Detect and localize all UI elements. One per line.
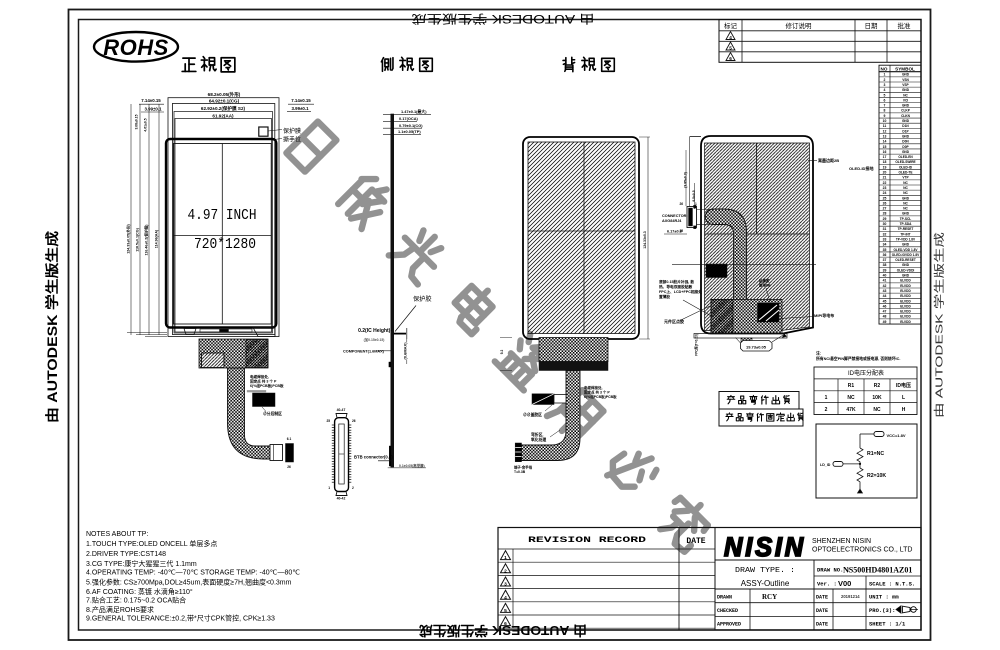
svg-text:12: 12	[883, 129, 887, 133]
svg-text:6.17±0.3: 6.17±0.3	[667, 230, 682, 234]
svg-text:由 AUTODESK 学生版生成: 由 AUTODESK 学生版生成	[933, 231, 946, 418]
svg-text:114.96(AA): 114.96(AA)	[155, 229, 159, 248]
svg-text:CLKP: CLKP	[901, 109, 911, 113]
svg-text:GND: GND	[902, 212, 910, 216]
svg-text:1: 1	[825, 395, 828, 401]
svg-text:NC: NC	[873, 407, 881, 413]
svg-text:CLKN: CLKN	[901, 114, 911, 118]
svg-text:6.1: 6.1	[287, 437, 292, 441]
svg-text:47: 47	[883, 310, 887, 314]
svg-text:68.2±0.05(外形): 68.2±0.05(外形)	[208, 91, 241, 98]
svg-text:40-42: 40-42	[337, 497, 346, 501]
svg-text:VCI: VCI	[903, 98, 908, 102]
svg-text:保护胶: 保护胶	[413, 295, 432, 303]
svg-text:NOTES ABOUT TP:: NOTES ABOUT TP:	[86, 531, 148, 538]
svg-text:26: 26	[287, 465, 291, 469]
svg-text:9.GENERAL TOLERANCE:±0.2,带*尺寸C: 9.GENERAL TOLERANCE:±0.2,带*尺寸CPK管控, CPK≥…	[86, 614, 275, 623]
svg-text:26: 26	[352, 419, 356, 423]
svg-text:NS500HD4801AZ01: NS500HD4801AZ01	[843, 566, 912, 575]
svg-text:33: 33	[883, 237, 887, 241]
svg-text:标记: 标记	[724, 21, 738, 30]
svg-text:TP-VDD 1.8V: TP-VDD 1.8V	[896, 237, 916, 241]
svg-text:REVISION RECORD: REVISION RECORD	[528, 535, 646, 545]
svg-text:8: 8	[884, 109, 886, 113]
svg-text:124.33±0.3: 124.33±0.3	[643, 231, 647, 249]
svg-text:OLED-VDDI: OLED-VDDI	[897, 268, 915, 272]
svg-text:贴黑胶: 贴黑胶	[759, 278, 770, 283]
svg-text:0.1±0.05(离型膜): 0.1±0.05(离型膜)	[399, 463, 425, 468]
svg-text:(加0.15±0.15): (加0.15±0.15)	[364, 337, 385, 342]
svg-text:ID电压分配表: ID电压分配表	[848, 369, 884, 377]
svg-text:MIPI导电布: MIPI导电布	[814, 312, 834, 318]
svg-text:GND: GND	[902, 104, 910, 108]
svg-text:OLED-EN: OLED-EN	[898, 155, 913, 159]
svg-text:48: 48	[883, 315, 887, 319]
svg-text:OLED-SWIRE: OLED-SWIRE	[895, 160, 915, 164]
svg-text:10: 10	[883, 119, 887, 123]
svg-text:VSN: VSN	[902, 78, 909, 82]
svg-text:116.46±0.2(保护膜): 116.46±0.2(保护膜)	[144, 224, 149, 256]
svg-text:D1P: D1P	[902, 129, 909, 133]
svg-text:由 AUTODESK 学生版生成: 由 AUTODESK 学生版生成	[411, 12, 595, 26]
svg-text:离墨边距2B: 离墨边距2B	[818, 157, 839, 163]
svg-text:0.17(OCA): 0.17(OCA)	[399, 116, 419, 121]
svg-text:124.33±0.05(外形): 124.33±0.05(外形)	[126, 223, 131, 253]
svg-text:Ver. :: Ver. :	[817, 581, 837, 588]
svg-text:VCC=1.8V: VCC=1.8V	[887, 433, 906, 438]
svg-text:24: 24	[883, 191, 887, 195]
svg-text:SYMBOL: SYMBOL	[895, 67, 915, 72]
svg-text:5: 5	[729, 46, 732, 51]
svg-text:35: 35	[883, 248, 887, 252]
svg-text:⊘分后制区: ⊘分后制区	[263, 411, 282, 416]
svg-text:修订说明: 修订说明	[786, 21, 813, 30]
svg-text:21: 21	[883, 176, 887, 180]
svg-text:34: 34	[883, 243, 887, 247]
svg-text:⊘⊘盖胶区: ⊘⊘盖胶区	[523, 412, 542, 417]
svg-text:15: 15	[883, 145, 887, 149]
svg-text:9: 9	[884, 114, 886, 118]
svg-text:19: 19	[883, 165, 887, 169]
svg-text:注:: 注:	[816, 351, 821, 356]
svg-text:17: 17	[883, 155, 887, 159]
svg-text:6(%组PCB板)PCB板: 6(%组PCB板)PCB板	[250, 383, 284, 388]
svg-text:ELVDD: ELVDD	[900, 299, 911, 303]
svg-text:ELVDD: ELVDD	[900, 304, 911, 308]
svg-text:4.61±0.5: 4.61±0.5	[144, 118, 148, 131]
svg-text:45: 45	[883, 299, 887, 303]
svg-text:热、导电双面胶贴敷: 热、导电双面胶贴敷	[659, 284, 692, 289]
svg-text:7.14±0.15: 7.14±0.15	[291, 98, 311, 103]
svg-text:36: 36	[883, 253, 887, 257]
svg-text:9.2: 9.2	[500, 350, 504, 355]
svg-text:固定点 共 3 个 P: 固定点 共 3 个 P	[250, 379, 277, 384]
svg-text:DATE: DATE	[816, 608, 828, 614]
svg-text:SHENZHEN NISIN: SHENZHEN NISIN	[812, 538, 871, 545]
svg-text:RCY: RCY	[762, 593, 777, 601]
svg-text:3.08±0.15: 3.08±0.15	[135, 114, 139, 129]
svg-text:1.1±0.05(TP): 1.1±0.05(TP)	[398, 129, 421, 134]
svg-text:20191214: 20191214	[841, 594, 860, 599]
svg-text:61.92(AA): 61.92(AA)	[212, 114, 234, 119]
svg-text:APPROVED: APPROVED	[717, 622, 741, 628]
svg-text:2.DRIVER TYPE:CST148: 2.DRIVER TYPE:CST148	[86, 551, 166, 558]
svg-text:GND: GND	[902, 150, 910, 154]
svg-text:26: 26	[679, 202, 683, 206]
svg-text:DRAW TYPE. :: DRAW TYPE. :	[735, 567, 795, 575]
svg-text:H: H	[902, 407, 906, 413]
svg-text:DRAWN: DRAWN	[717, 595, 732, 601]
svg-text:TP-SCL: TP-SCL	[900, 217, 912, 221]
svg-text:4.OPERATING TEMP: -40℃—70℃ STO: 4.OPERATING TEMP: -40℃—70℃ STORAGE TEMP:…	[86, 570, 300, 577]
svg-text:DATE: DATE	[816, 622, 828, 628]
svg-text:R1=NC: R1=NC	[867, 451, 884, 457]
svg-text:16: 16	[883, 150, 887, 154]
svg-text:PRO.(3):: PRO.(3):	[869, 607, 895, 614]
svg-text:4.97 INCH: 4.97 INCH	[188, 207, 257, 224]
svg-text:6(%组PCB板)PCB板: 6(%组PCB板)PCB板	[584, 394, 617, 399]
svg-text:日期: 日期	[865, 22, 879, 30]
svg-text:BTB connector(0.6): BTB connector(0.6)	[354, 455, 393, 460]
svg-text:ELVDD: ELVDD	[900, 294, 911, 298]
svg-text:3: 3	[884, 83, 886, 87]
svg-text:ROHS: ROHS	[103, 35, 169, 60]
svg-text:CHECKED: CHECKED	[717, 608, 738, 614]
svg-text:电缆焊接处,: 电缆焊接处,	[250, 374, 269, 379]
svg-text:44: 44	[883, 294, 887, 298]
svg-text:SCALE : N.T.S.: SCALE : N.T.S.	[869, 581, 915, 588]
svg-text:底部0.15胶片补强, 散: 底部0.15胶片补强, 散	[659, 279, 694, 284]
svg-text:3.99±0.1: 3.99±0.1	[291, 106, 309, 111]
svg-text:27: 27	[883, 207, 887, 211]
svg-text:NC: NC	[903, 181, 908, 185]
svg-text:CONNECTOR:: CONNECTOR:	[662, 214, 688, 218]
svg-text:43: 43	[883, 289, 887, 293]
svg-text:39: 39	[883, 268, 887, 272]
svg-text:R2=10K: R2=10K	[867, 473, 886, 479]
svg-text:1: 1	[328, 486, 330, 490]
svg-text:2: 2	[504, 568, 507, 574]
svg-text:1: 1	[884, 73, 886, 77]
svg-text:固定点 共 3 个 P: 固定点 共 3 个 P	[584, 390, 610, 395]
svg-text:41: 41	[883, 279, 887, 283]
svg-text:23: 23	[883, 186, 887, 190]
svg-text:T=0.3B: T=0.3B	[514, 470, 526, 474]
svg-text:64.92±0.1(CG): 64.92±0.1(CG)	[209, 98, 240, 103]
svg-text:4: 4	[504, 595, 507, 601]
svg-text:30: 30	[883, 222, 887, 226]
svg-text:7.14±0.15: 7.14±0.15	[141, 98, 161, 103]
svg-text:14: 14	[883, 140, 887, 144]
svg-text:19.73±0.05: 19.73±0.05	[746, 345, 767, 350]
svg-text:R1: R1	[848, 383, 855, 389]
svg-text:22: 22	[883, 181, 887, 185]
svg-text:720*1280: 720*1280	[194, 237, 256, 253]
svg-text:AXG84RJ4: AXG84RJ4	[662, 219, 682, 223]
svg-text:NISIN: NISIN	[724, 532, 806, 562]
svg-text:胶带8B: 胶带8B	[758, 283, 771, 288]
svg-text:ASSY-Outline: ASSY-Outline	[741, 579, 790, 588]
svg-text:5.强化参数: CS≥700Mpa,DOL≥45um,表面硬: 5.强化参数: CS≥700Mpa,DOL≥45um,表面硬度≥7H,翘曲度<0…	[86, 578, 292, 587]
svg-text:37: 37	[883, 258, 887, 262]
svg-text:18: 18	[883, 160, 887, 164]
svg-text:ELVDD: ELVDD	[900, 289, 911, 293]
svg-text:49: 49	[883, 320, 887, 324]
svg-text:20: 20	[883, 171, 887, 175]
svg-text:10K: 10K	[872, 395, 882, 401]
svg-text:1.47±0.1(最大): 1.47±0.1(最大)	[401, 109, 427, 114]
svg-text:GND: GND	[902, 88, 910, 92]
svg-text:40-47: 40-47	[337, 408, 346, 412]
svg-text:NC: NC	[847, 395, 855, 401]
svg-text:6.AF COATING: 蒸镀 水滴角≥110°: 6.AF COATING: 蒸镀 水滴角≥110°	[86, 587, 193, 596]
svg-text:GND: GND	[902, 119, 910, 123]
svg-text:批准: 批准	[898, 21, 912, 30]
svg-text:GND: GND	[902, 134, 910, 138]
svg-text:7: 7	[884, 104, 886, 108]
svg-text:40: 40	[883, 274, 887, 278]
svg-text:置薄胶: 置薄胶	[659, 294, 670, 299]
svg-text:2: 2	[825, 407, 828, 413]
svg-text:OLED-RESET: OLED-RESET	[895, 258, 916, 262]
svg-text:TP-RESET: TP-RESET	[898, 227, 914, 231]
svg-text:(0.6MAX): (0.6MAX)	[403, 342, 408, 360]
svg-text:由 AUTODESK 学生版生成: 由 AUTODESK 学生版生成	[44, 230, 60, 423]
svg-text:32: 32	[883, 232, 887, 236]
svg-text:3: 3	[504, 582, 507, 588]
svg-text:端子-金手指: 端子-金手指	[514, 465, 533, 470]
svg-text:3.CG TYPE:康宁大猩猩三代 1.1mm: 3.CG TYPE:康宁大猩猩三代 1.1mm	[86, 559, 197, 568]
svg-text:撕手位: 撕手位	[283, 136, 301, 144]
svg-text:(3.85±0.3): (3.85±0.3)	[684, 172, 688, 187]
svg-text:D1N: D1N	[902, 124, 909, 128]
svg-text:FPC上、LCD+FPC相接处: FPC上、LCD+FPC相接处	[659, 289, 702, 294]
svg-text:0.79±0.1(CG): 0.79±0.1(CG)	[399, 123, 423, 128]
svg-text:电缆焊接处,: 电缆焊接处,	[584, 385, 602, 390]
svg-text:OLED-ID接地: OLED-ID接地	[849, 165, 873, 171]
svg-text:TP-SDA: TP-SDA	[900, 222, 913, 226]
svg-text:38: 38	[883, 263, 887, 267]
svg-text:DATE: DATE	[816, 595, 828, 601]
svg-text:4: 4	[884, 88, 886, 92]
svg-text:25: 25	[326, 419, 330, 423]
svg-text:TP-INT: TP-INT	[900, 232, 910, 236]
svg-text:4: 4	[729, 35, 732, 40]
svg-text:ELVDD: ELVDD	[900, 310, 911, 314]
svg-text:NC: NC	[903, 186, 908, 190]
svg-text:OLED-TE: OLED-TE	[899, 171, 913, 175]
svg-text:6: 6	[729, 56, 732, 61]
svg-text:8.产品满足ROHS要求: 8.产品满足ROHS要求	[86, 605, 154, 614]
svg-text:GND: GND	[902, 243, 910, 247]
svg-text:所有NC/悬空PIN脚严禁接地或接电源, 否则烧坏IC.: 所有NC/悬空PIN脚严禁接地或接电源, 否则烧坏IC.	[816, 356, 900, 361]
svg-text:6: 6	[884, 98, 886, 102]
svg-text:GND: GND	[902, 263, 910, 267]
svg-text:D0N: D0N	[902, 140, 909, 144]
svg-text:118.5±0.1(CG): 118.5±0.1(CG)	[136, 227, 140, 251]
svg-text:GND: GND	[902, 274, 910, 278]
svg-text:OLED-ID: OLED-ID	[899, 165, 913, 169]
svg-text:3.99±0.1: 3.99±0.1	[144, 107, 162, 112]
svg-text:NC: NC	[903, 93, 908, 97]
svg-text:11: 11	[883, 124, 887, 128]
svg-text:42: 42	[883, 284, 887, 288]
svg-text:25: 25	[883, 196, 887, 200]
svg-text:29: 29	[883, 217, 887, 221]
svg-text:元件区点胶: 元件区点胶	[664, 318, 684, 324]
svg-text:28: 28	[883, 212, 887, 216]
svg-text:NC: NC	[903, 207, 908, 211]
svg-text:OLED-VDD 1.8V: OLED-VDD 1.8V	[893, 248, 918, 252]
svg-text:SHEET : 1/1: SHEET : 1/1	[869, 621, 906, 628]
svg-text:R2: R2	[874, 383, 881, 389]
svg-text:47K: 47K	[846, 407, 856, 413]
svg-text:13: 13	[883, 134, 887, 138]
svg-text:NC: NC	[903, 201, 908, 205]
svg-text:VTP: VTP	[902, 176, 909, 180]
svg-text:V00: V00	[838, 579, 851, 588]
svg-text:保护膜: 保护膜	[283, 127, 301, 135]
svg-text:氧化处理: 氧化处理	[530, 437, 546, 442]
svg-text:GND: GND	[902, 73, 910, 77]
svg-text:46: 46	[883, 304, 887, 308]
svg-text:VSP: VSP	[902, 83, 909, 87]
svg-text:NC: NC	[903, 191, 908, 195]
svg-text:GND: GND	[902, 196, 910, 200]
svg-text:L: L	[902, 395, 905, 401]
svg-text:5: 5	[504, 608, 507, 614]
svg-text:ELVDD: ELVDD	[900, 320, 911, 324]
svg-text:ELVDD: ELVDD	[900, 284, 911, 288]
svg-text:5: 5	[884, 93, 886, 97]
svg-text:OLED-IOVDD 1.8V: OLED-IOVDD 1.8V	[892, 253, 920, 257]
svg-text:UNIT : mm: UNIT : mm	[869, 594, 899, 601]
svg-text:7.贴合工艺: 0.175~0.2 OCA贴合: 7.贴合工艺: 0.175~0.2 OCA贴合	[86, 596, 186, 605]
svg-text:ELVDD: ELVDD	[900, 279, 911, 283]
svg-text:弯折区,: 弯折区,	[531, 432, 543, 437]
svg-text:COMPONENT(1.6MAX): COMPONENT(1.6MAX)	[343, 349, 385, 353]
svg-text:2: 2	[884, 78, 886, 82]
svg-text:62.92±0.2(保护膜 S2): 62.92±0.2(保护膜 S2)	[201, 105, 246, 112]
svg-text:ID电压: ID电压	[896, 382, 911, 389]
svg-text:FPC厚(T=0.23): FPC厚(T=0.23)	[694, 334, 699, 356]
svg-text:6: 6	[504, 621, 507, 627]
svg-text:NO: NO	[881, 67, 888, 72]
svg-text:LD_ID: LD_ID	[820, 463, 831, 467]
svg-text:DATE: DATE	[686, 537, 705, 546]
svg-text:D0P: D0P	[902, 145, 909, 149]
svg-text:0.2(IC Height)-: 0.2(IC Height)-	[358, 328, 392, 334]
svg-text:2: 2	[352, 486, 354, 490]
svg-text:ELVDD: ELVDD	[900, 315, 911, 319]
svg-text:1: 1	[504, 555, 507, 561]
svg-text:9.5±0.5: 9.5±0.5	[692, 190, 696, 201]
svg-text:OPTOELECTRONICS CO., LTD: OPTOELECTRONICS CO., LTD	[812, 547, 912, 554]
svg-text:31: 31	[883, 227, 887, 231]
svg-text:26: 26	[883, 201, 887, 205]
svg-text:1.TOUCH TYPE:OLED ONCELL 单层多点: 1.TOUCH TYPE:OLED ONCELL 单层多点	[86, 539, 217, 548]
